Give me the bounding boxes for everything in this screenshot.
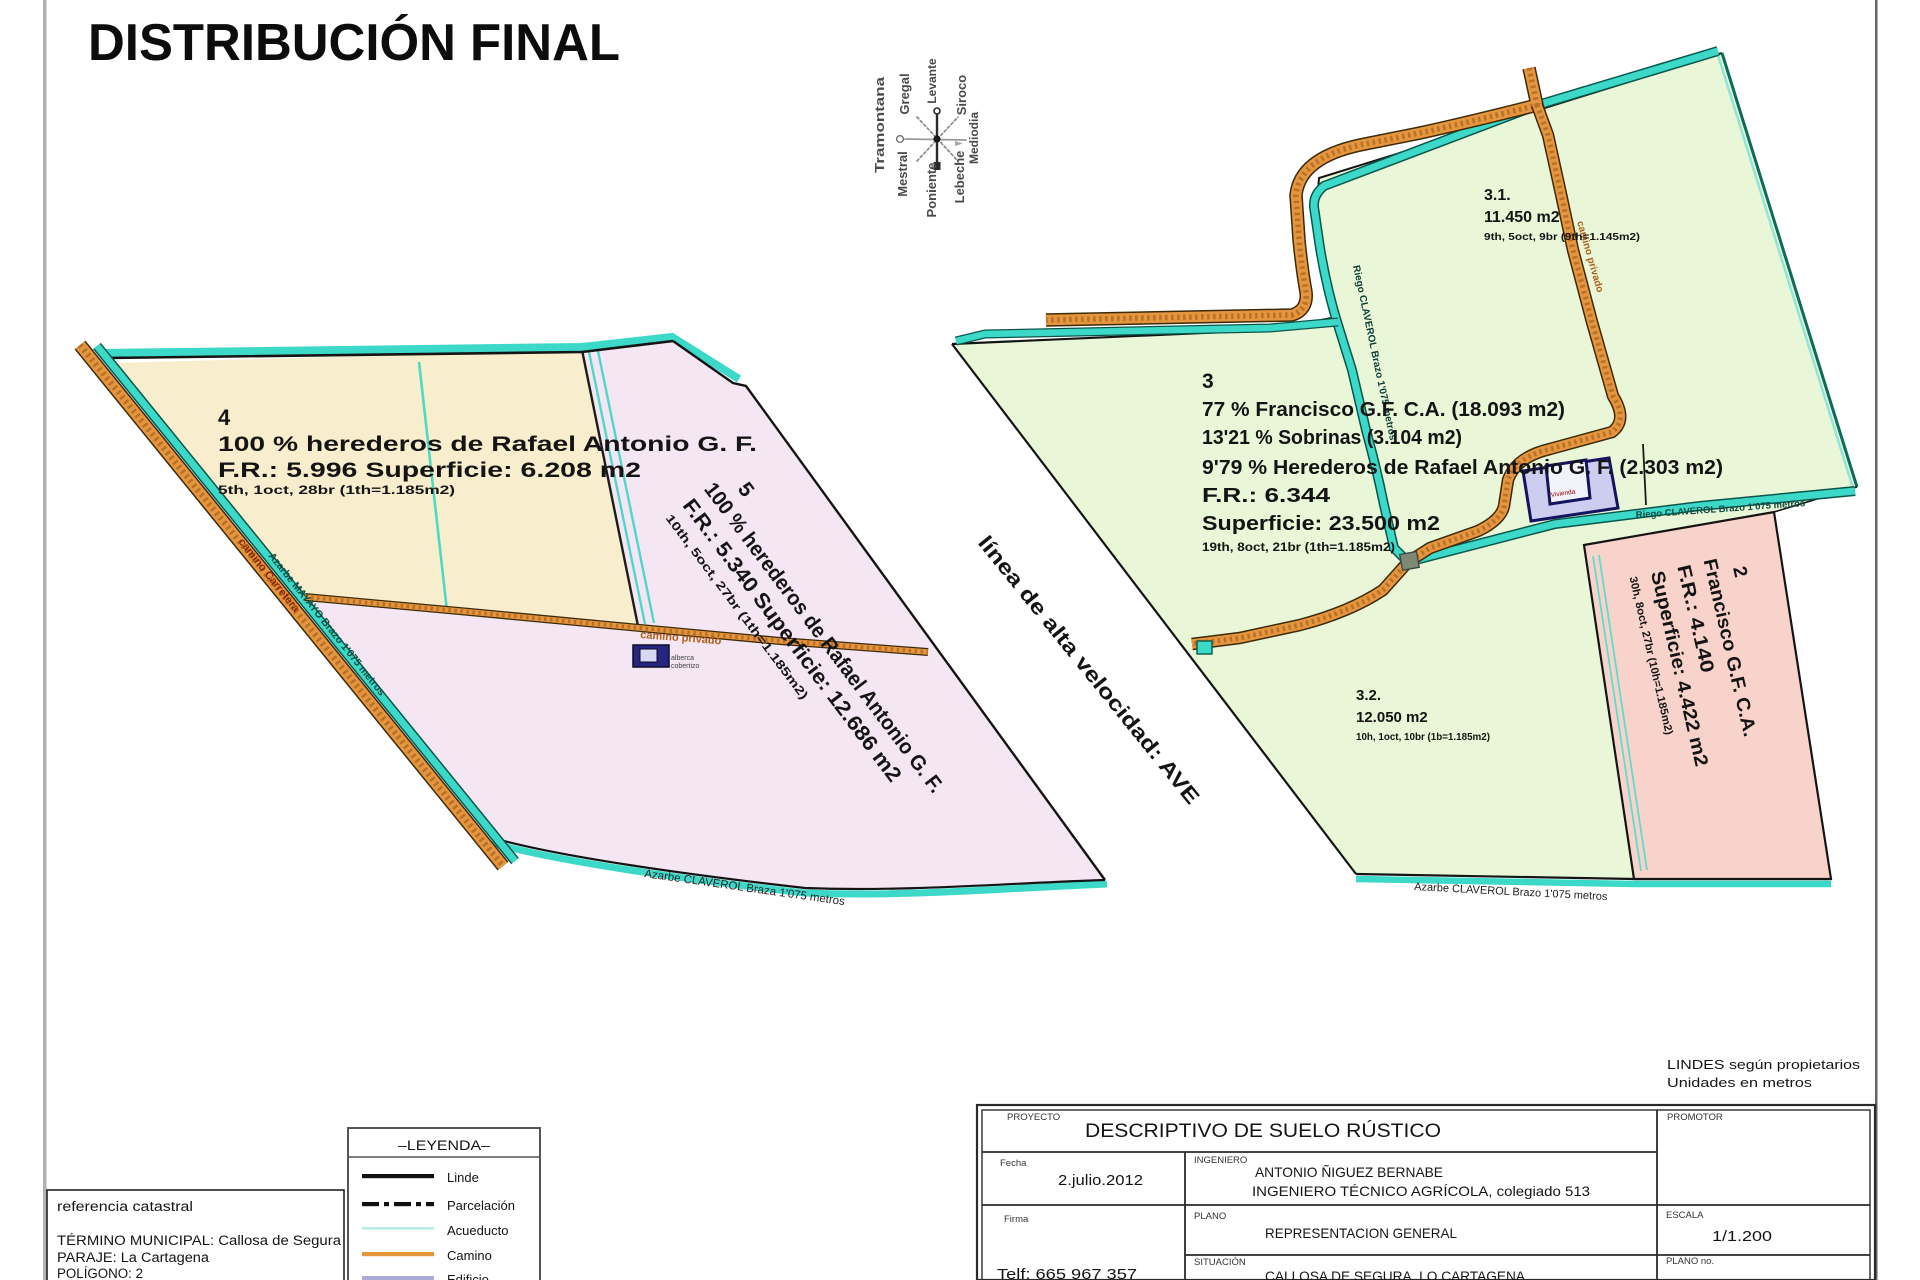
- svg-text:ESCALA: ESCALA: [1666, 1210, 1704, 1221]
- svg-text:DISTRIBUCIÓN FINAL: DISTRIBUCIÓN FINAL: [88, 14, 620, 72]
- svg-text:F.R.: 6.344: F.R.: 6.344: [1202, 485, 1331, 507]
- svg-text:Gregal: Gregal: [897, 73, 912, 114]
- svg-text:Camino: Camino: [447, 1248, 492, 1263]
- svg-text:–LEYENDA–: –LEYENDA–: [398, 1138, 491, 1153]
- svg-text:DESCRIPTIVO DE SUELO RÚSTIC: DESCRIPTIVO DE SUELO RÚSTICO: [1085, 1120, 1441, 1142]
- svg-text:Firma: Firma: [1004, 1214, 1029, 1225]
- svg-text:9th, 5oct, 9br (9th=1.145m2): 9th, 5oct, 9br (9th=1.145m2): [1484, 232, 1640, 243]
- svg-text:3: 3: [1202, 370, 1214, 393]
- svg-text:Levante: Levante: [925, 58, 939, 104]
- svg-text:10h, 1oct, 10br (1b=1.185m2): 10h, 1oct, 10br (1b=1.185m2): [1356, 732, 1490, 743]
- svg-text:4: 4: [218, 405, 231, 430]
- svg-text:PARAJE: La Cartagena: PARAJE: La Cartagena: [57, 1250, 210, 1265]
- svg-text:2.julio.2012: 2.julio.2012: [1058, 1172, 1143, 1189]
- svg-text:Mediodia: Mediodia: [967, 112, 981, 164]
- svg-text:Linde: Linde: [447, 1170, 479, 1185]
- svg-text:100 % herederos de Rafael Anto: 100 % herederos de Rafael Antonio G. F.: [218, 433, 757, 456]
- svg-text:13'21 % Sobrinas (3.104 m2): 13'21 % Sobrinas (3.104 m2): [1202, 427, 1462, 449]
- svg-text:PROMOTOR: PROMOTOR: [1667, 1112, 1723, 1123]
- svg-text:POLÍGONO: 2: POLÍGONO: 2: [57, 1266, 143, 1280]
- svg-text:Telf: 665 967 357: Telf: 665 967 357: [997, 1266, 1137, 1280]
- svg-text:REPRESENTACION GENERAL: REPRESENTACION GENERAL: [1265, 1225, 1457, 1241]
- svg-text:SITUACIÓN: SITUACIÓN: [1194, 1257, 1246, 1268]
- svg-text:Fecha: Fecha: [1000, 1158, 1027, 1169]
- svg-text:referencia catastral: referencia catastral: [57, 1199, 193, 1214]
- svg-text:11.450 m2: 11.450 m2: [1484, 209, 1560, 226]
- svg-text:Poniente: Poniente: [924, 163, 939, 218]
- svg-text:INGENIERO TÉCNICO AGRÍCOLA,: INGENIERO TÉCNICO AGRÍCOLA, colegiado 51…: [1252, 1183, 1590, 1199]
- svg-text:INGENIERO: INGENIERO: [1194, 1155, 1247, 1166]
- svg-text:TÉRMINO MUNICIPAL: Callosa: TÉRMINO MUNICIPAL: Callosa de Segura: [57, 1233, 342, 1248]
- svg-text:PLANO no.: PLANO no.: [1666, 1256, 1714, 1267]
- svg-text:9'79 % Herederos de Rafael Ant: 9'79 % Herederos de Rafael Antonio G. F.…: [1202, 457, 1723, 479]
- svg-text:Superficie: 23.500 m2: Superficie: 23.500 m2: [1202, 513, 1440, 535]
- svg-text:PROYECTO: PROYECTO: [1007, 1112, 1060, 1123]
- svg-text:Parcelación: Parcelación: [447, 1198, 515, 1213]
- svg-text:Unidades en metros: Unidades en metros: [1667, 1075, 1813, 1090]
- svg-text:Lebeche: Lebeche: [952, 151, 967, 204]
- svg-text:F.R.: 5.996 Superficie: 6: F.R.: 5.996 Superficie: 6.208 m2: [218, 459, 641, 482]
- svg-text:LINDES según propietarios: LINDES según propietarios: [1667, 1057, 1861, 1072]
- svg-text:5th, 1oct, 28br (1th=1.185m: 5th, 1oct, 28br (1th=1.185m2): [218, 483, 455, 497]
- svg-text:Tramontana: Tramontana: [872, 76, 887, 173]
- svg-text:alberca: alberca: [671, 655, 694, 662]
- svg-text:77 % Francisco G.F. C.A. (18.0: 77 % Francisco G.F. C.A. (18.093 m2): [1202, 399, 1565, 421]
- svg-text:PLANO: PLANO: [1194, 1211, 1226, 1222]
- svg-text:Mestral: Mestral: [895, 151, 910, 197]
- svg-text:Siroco: Siroco: [954, 75, 969, 116]
- svg-text:Edificio: Edificio: [447, 1272, 489, 1280]
- svg-text:ANTONIO ÑIGUEZ BERNABE: ANTONIO ÑIGUEZ BERNABE: [1255, 1164, 1443, 1180]
- svg-text:3.1.: 3.1.: [1484, 187, 1511, 204]
- svg-text:Acueducto: Acueducto: [447, 1223, 508, 1238]
- svg-text:1/1.200: 1/1.200: [1712, 1228, 1772, 1245]
- svg-text:cobertizo: cobertizo: [671, 663, 700, 670]
- svg-text:12.050 m2: 12.050 m2: [1356, 709, 1428, 726]
- svg-text:CALLOSA DE SEGURA, LO CART: CALLOSA DE SEGURA, LO CARTAGENA: [1265, 1269, 1525, 1280]
- svg-text:19th, 8oct, 21br (1th=1.185: 19th, 8oct, 21br (1th=1.185m2): [1202, 540, 1395, 554]
- svg-text:3.2.: 3.2.: [1356, 687, 1381, 704]
